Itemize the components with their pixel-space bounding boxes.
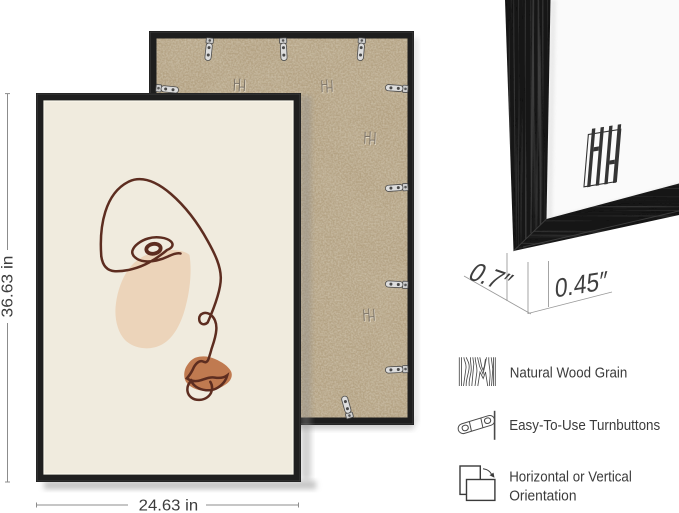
svg-text:Horizontal or Vertical: Horizontal or Vertical (509, 469, 632, 486)
svg-text:36.63 in: 36.63 in (0, 256, 17, 318)
svg-text:24.63 in: 24.63 in (139, 498, 199, 513)
svg-text:Natural Wood Grain: Natural Wood Grain (510, 365, 628, 382)
svg-text:Easy-To-Use Turnbuttons: Easy-To-Use Turnbuttons (509, 417, 660, 434)
svg-text:Orientation: Orientation (509, 488, 576, 505)
